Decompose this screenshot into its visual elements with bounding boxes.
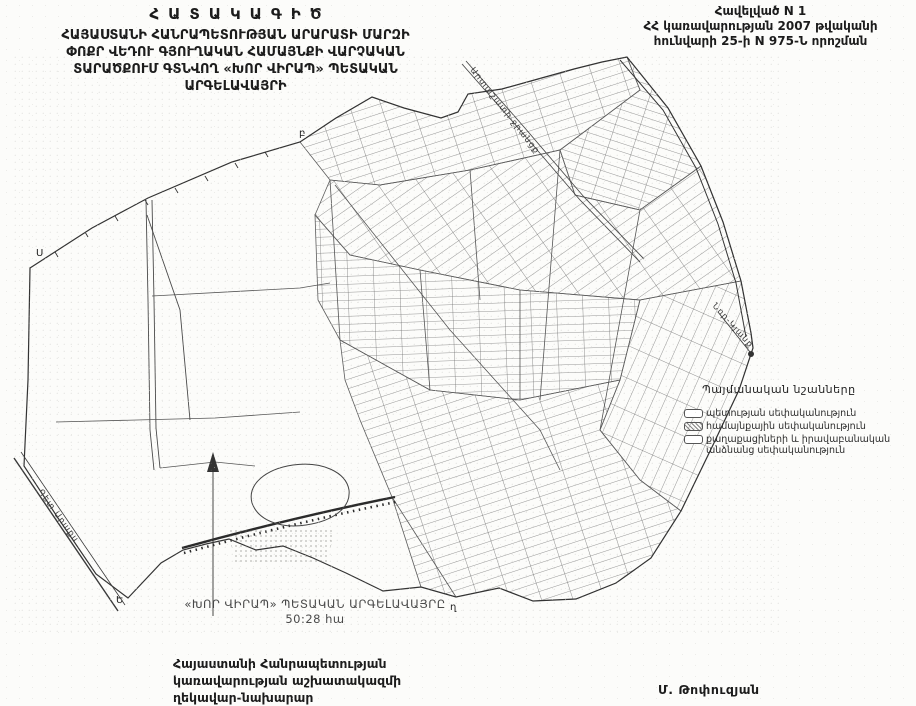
legend-swatch-hatched-icon xyxy=(684,422,703,431)
signatory-line: ղեկավար-նախարար xyxy=(173,689,401,706)
legend-item-state: պետության սեփականություն xyxy=(684,408,912,419)
document-title: ՀԱՏԱԿԱԳԻԾ xyxy=(0,5,480,23)
signatory-line: Հայաստանի Հանրապետության xyxy=(173,655,401,672)
legend-item-label: պետության սեփականություն xyxy=(706,408,856,419)
legend-item-label: քաղաքացիների և իրավաբանական անձնանց սեփա… xyxy=(706,434,912,456)
signature-name: Մ. Թոփուզյան xyxy=(658,682,760,697)
legend-item-community: համայնքային սեփականություն xyxy=(684,421,912,432)
legend-swatch-outline-icon xyxy=(684,409,703,418)
annex-line: հունվարի 25-ի N 975-Ն որոշման xyxy=(608,34,913,49)
subtitle-line: ՏԱՐԱԾՔՈՒՄ ԳՏՆՎՈՂ «ԽՈՐ ՎԻՐԱՊ» ՊԵՏԱԿԱՆ xyxy=(8,61,463,78)
boundary-point-letter: բ xyxy=(299,128,305,139)
boundary-point-letter: Ս xyxy=(36,248,43,259)
subtitle-line: ՓՈՔՐ ՎԵԴՈՒ ԳՅՈՒՂԱԿԱՆ ՀԱՄԱՅՆՔԻ ՎԱՐՉԱԿԱՆ xyxy=(8,44,463,61)
subtitle-line: ԱՐԳԵԼԱՎԱՅՐԻ xyxy=(8,78,463,95)
reserve-caption: «ԽՈՐ ՎԻՐԱՊ» ՊԵՏԱԿԱՆ ԱՐԳԵԼԱՎԱՅՐԸ 50:28 հա xyxy=(100,597,530,627)
annex-line: ՀՀ կառավարության 2007 թվականի xyxy=(608,19,913,34)
legend-item-label: համայնքային սեփականություն xyxy=(706,421,866,432)
legend-swatch-outline-icon xyxy=(684,435,703,444)
legend-item-private: քաղաքացիների և իրավաբանական անձնանց սեփա… xyxy=(684,434,912,456)
annex-reference: Հավելված N 1 ՀՀ կառավարության 2007 թվակա… xyxy=(608,4,913,49)
map-legend: Պայմանական նշանները պետության սեփականութ… xyxy=(684,383,912,458)
reserve-title: «ԽՈՐ ՎԻՐԱՊ» ՊԵՏԱԿԱՆ ԱՐԳԵԼԱՎԱՅՐԸ xyxy=(100,597,530,612)
signatory-block: Հայաստանի Հանրապետության կառավարության ա… xyxy=(173,655,401,706)
subtitle-line: ՀԱՅԱՍՏԱՆԻ ՀԱՆՐԱՊԵՏՈՒԹՅԱՆ ԱՐԱՐԱՏԻ ՄԱՐԶԻ xyxy=(8,27,463,44)
scan-noise xyxy=(12,52,780,632)
document-subtitle: ՀԱՅԱՍՏԱՆԻ ՀԱՆՐԱՊԵՏՈՒԹՅԱՆ ԱՐԱՐԱՏԻ ՄԱՐԶԻ Փ… xyxy=(8,27,463,95)
signatory-line: կառավարության աշխատակազմի xyxy=(173,672,401,689)
legend-title: Պայմանական նշանները xyxy=(702,383,912,396)
reserve-area-value: 50:28 հա xyxy=(100,612,530,627)
annex-line: Հավելված N 1 xyxy=(608,4,913,19)
